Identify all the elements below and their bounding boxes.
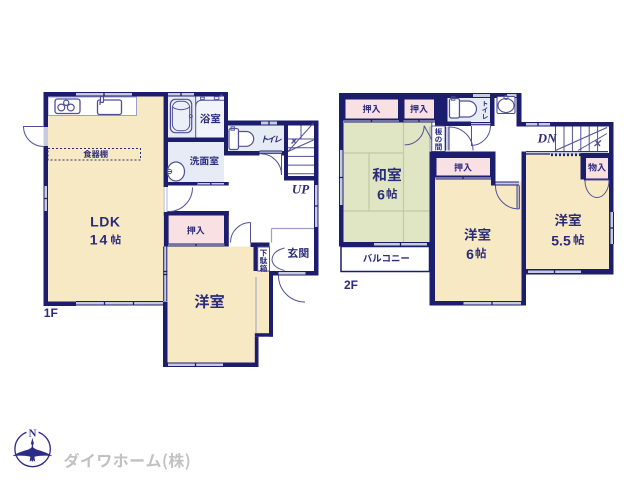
svg-text:2F: 2F [344, 278, 358, 292]
svg-text:6: 6 [466, 246, 474, 262]
svg-text:5.5: 5.5 [551, 233, 571, 249]
svg-text:14: 14 [90, 232, 110, 248]
svg-text:1F: 1F [44, 306, 58, 320]
svg-text:UP: UP [292, 182, 310, 197]
svg-text:DN: DN [537, 131, 557, 146]
svg-text:LDK: LDK [90, 213, 120, 229]
svg-text:6: 6 [377, 187, 385, 203]
svg-text:N: N [29, 428, 37, 440]
